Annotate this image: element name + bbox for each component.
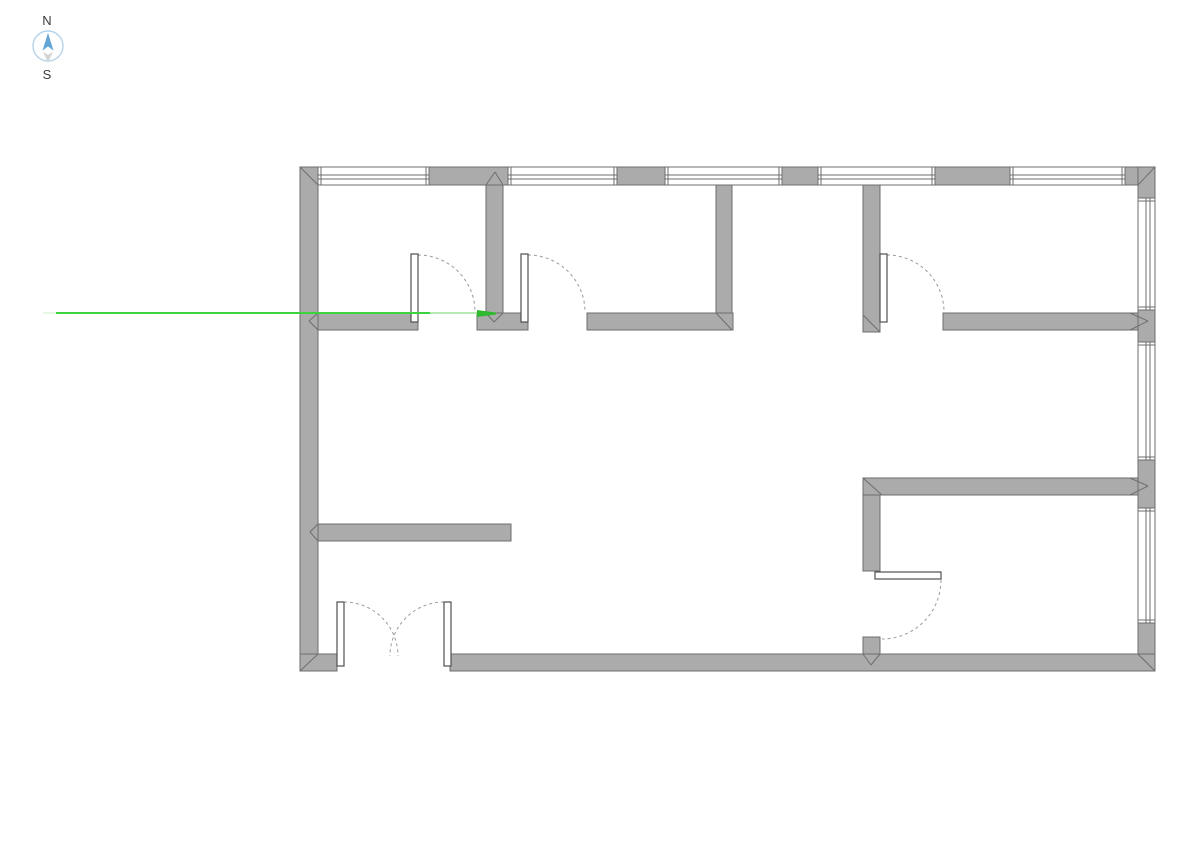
door-1-swing <box>418 255 475 312</box>
compass-widget[interactable]: N S <box>33 13 63 82</box>
exterior-wall-left[interactable] <box>300 167 318 671</box>
window-right-1[interactable] <box>1138 198 1155 310</box>
window-right-3[interactable] <box>1138 508 1155 623</box>
partition-wall-v3[interactable] <box>863 185 880 332</box>
window-top-3[interactable] <box>665 167 782 185</box>
window-right-2[interactable] <box>1138 342 1155 460</box>
window-top-2[interactable] <box>508 167 617 185</box>
door-2-swing <box>528 255 585 312</box>
door-2-leaf[interactable] <box>521 254 528 322</box>
walls-layer <box>300 167 1155 671</box>
door-3-swing <box>887 255 944 312</box>
drawing-canvas: N S <box>0 0 1191 842</box>
window-top-5-frame <box>1010 167 1125 185</box>
compass-south-label: S <box>43 67 52 82</box>
double-door-right-leaf[interactable] <box>444 602 451 666</box>
exterior-wall-bottom-left[interactable] <box>300 654 337 671</box>
window-top-4[interactable] <box>818 167 935 185</box>
partition-wall-h2[interactable] <box>943 313 1138 330</box>
window-top-5[interactable] <box>1010 167 1125 185</box>
window-top-1-frame <box>318 167 429 185</box>
window-top-4-frame <box>818 167 935 185</box>
reference-line-layer <box>43 310 496 317</box>
floor-plan-drawing: N S <box>0 0 1191 842</box>
double-door-left-swing <box>344 602 398 656</box>
partition-wall-h4[interactable] <box>863 478 1138 495</box>
door-4-leaf[interactable] <box>875 572 941 579</box>
door-4-swing <box>882 580 941 639</box>
window-top-1[interactable] <box>318 167 429 185</box>
exterior-wall-top-pier-1[interactable] <box>429 167 508 185</box>
exterior-wall-bottom-main[interactable] <box>450 654 1155 671</box>
double-door-left-leaf[interactable] <box>337 602 344 666</box>
compass-north-label: N <box>42 13 51 28</box>
window-top-3-frame <box>665 167 782 185</box>
door-3-leaf[interactable] <box>880 254 887 322</box>
exterior-wall-top-pier-3[interactable] <box>782 167 818 185</box>
exterior-wall-top-pier-4[interactable] <box>935 167 1010 185</box>
partition-wall-h3[interactable] <box>318 524 511 541</box>
double-door-right-swing <box>390 602 444 656</box>
partition-wall-h1-c[interactable] <box>587 313 733 330</box>
door-1-leaf[interactable] <box>411 254 418 322</box>
partition-wall-h1-a[interactable] <box>318 313 418 330</box>
partition-wall-v4[interactable] <box>863 495 880 571</box>
window-top-2-frame <box>508 167 617 185</box>
exterior-wall-top-pier-2[interactable] <box>617 167 665 185</box>
windows-layer <box>318 167 1155 623</box>
exterior-wall-right-seg-3[interactable] <box>1138 460 1155 508</box>
partition-wall-v2[interactable] <box>716 185 732 313</box>
partition-wall-v1[interactable] <box>486 185 503 313</box>
exterior-wall-right-seg-2[interactable] <box>1138 310 1155 342</box>
partition-wall-v4-stub[interactable] <box>863 637 880 654</box>
